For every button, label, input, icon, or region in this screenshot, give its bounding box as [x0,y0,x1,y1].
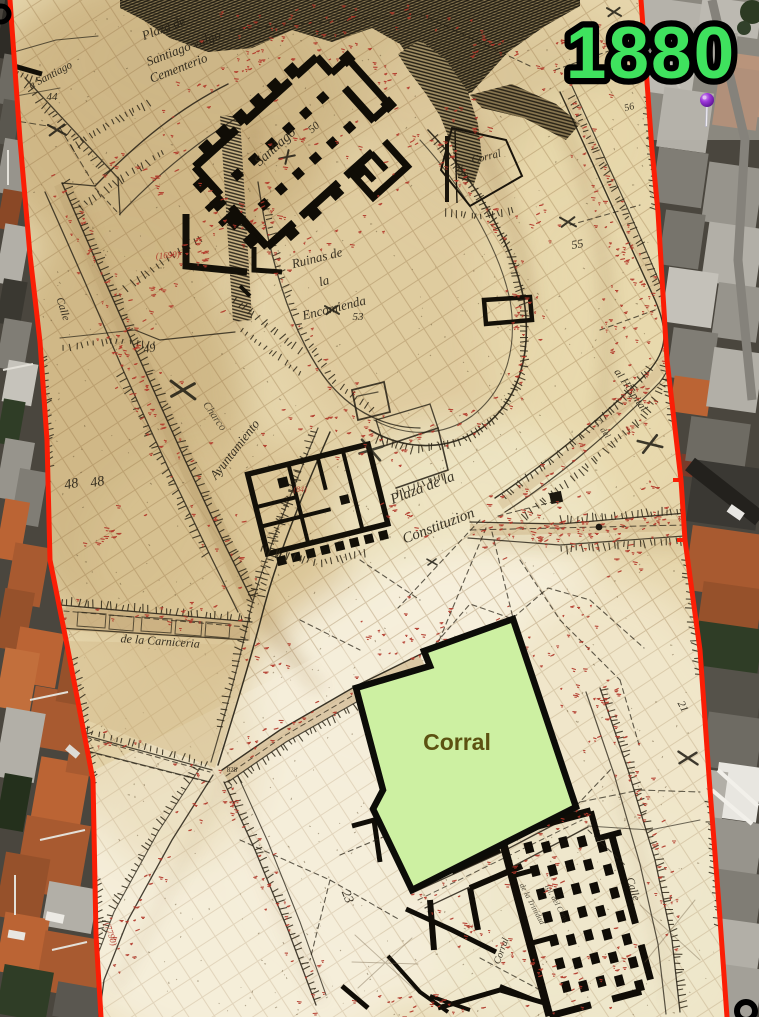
svg-text:53: 53 [353,311,365,323]
svg-text:44: 44 [47,91,59,103]
svg-text:48: 48 [63,476,79,493]
svg-text:(1690): (1690) [155,249,180,261]
svg-text:55: 55 [570,236,584,252]
svg-text:(84): (84) [293,485,307,494]
svg-text:828: 828 [227,766,238,774]
svg-text:1880: 1880 [566,13,736,94]
svg-text:48: 48 [89,474,105,491]
svg-text:49: 49 [143,340,157,356]
svg-text:Corral: Corral [423,729,491,755]
